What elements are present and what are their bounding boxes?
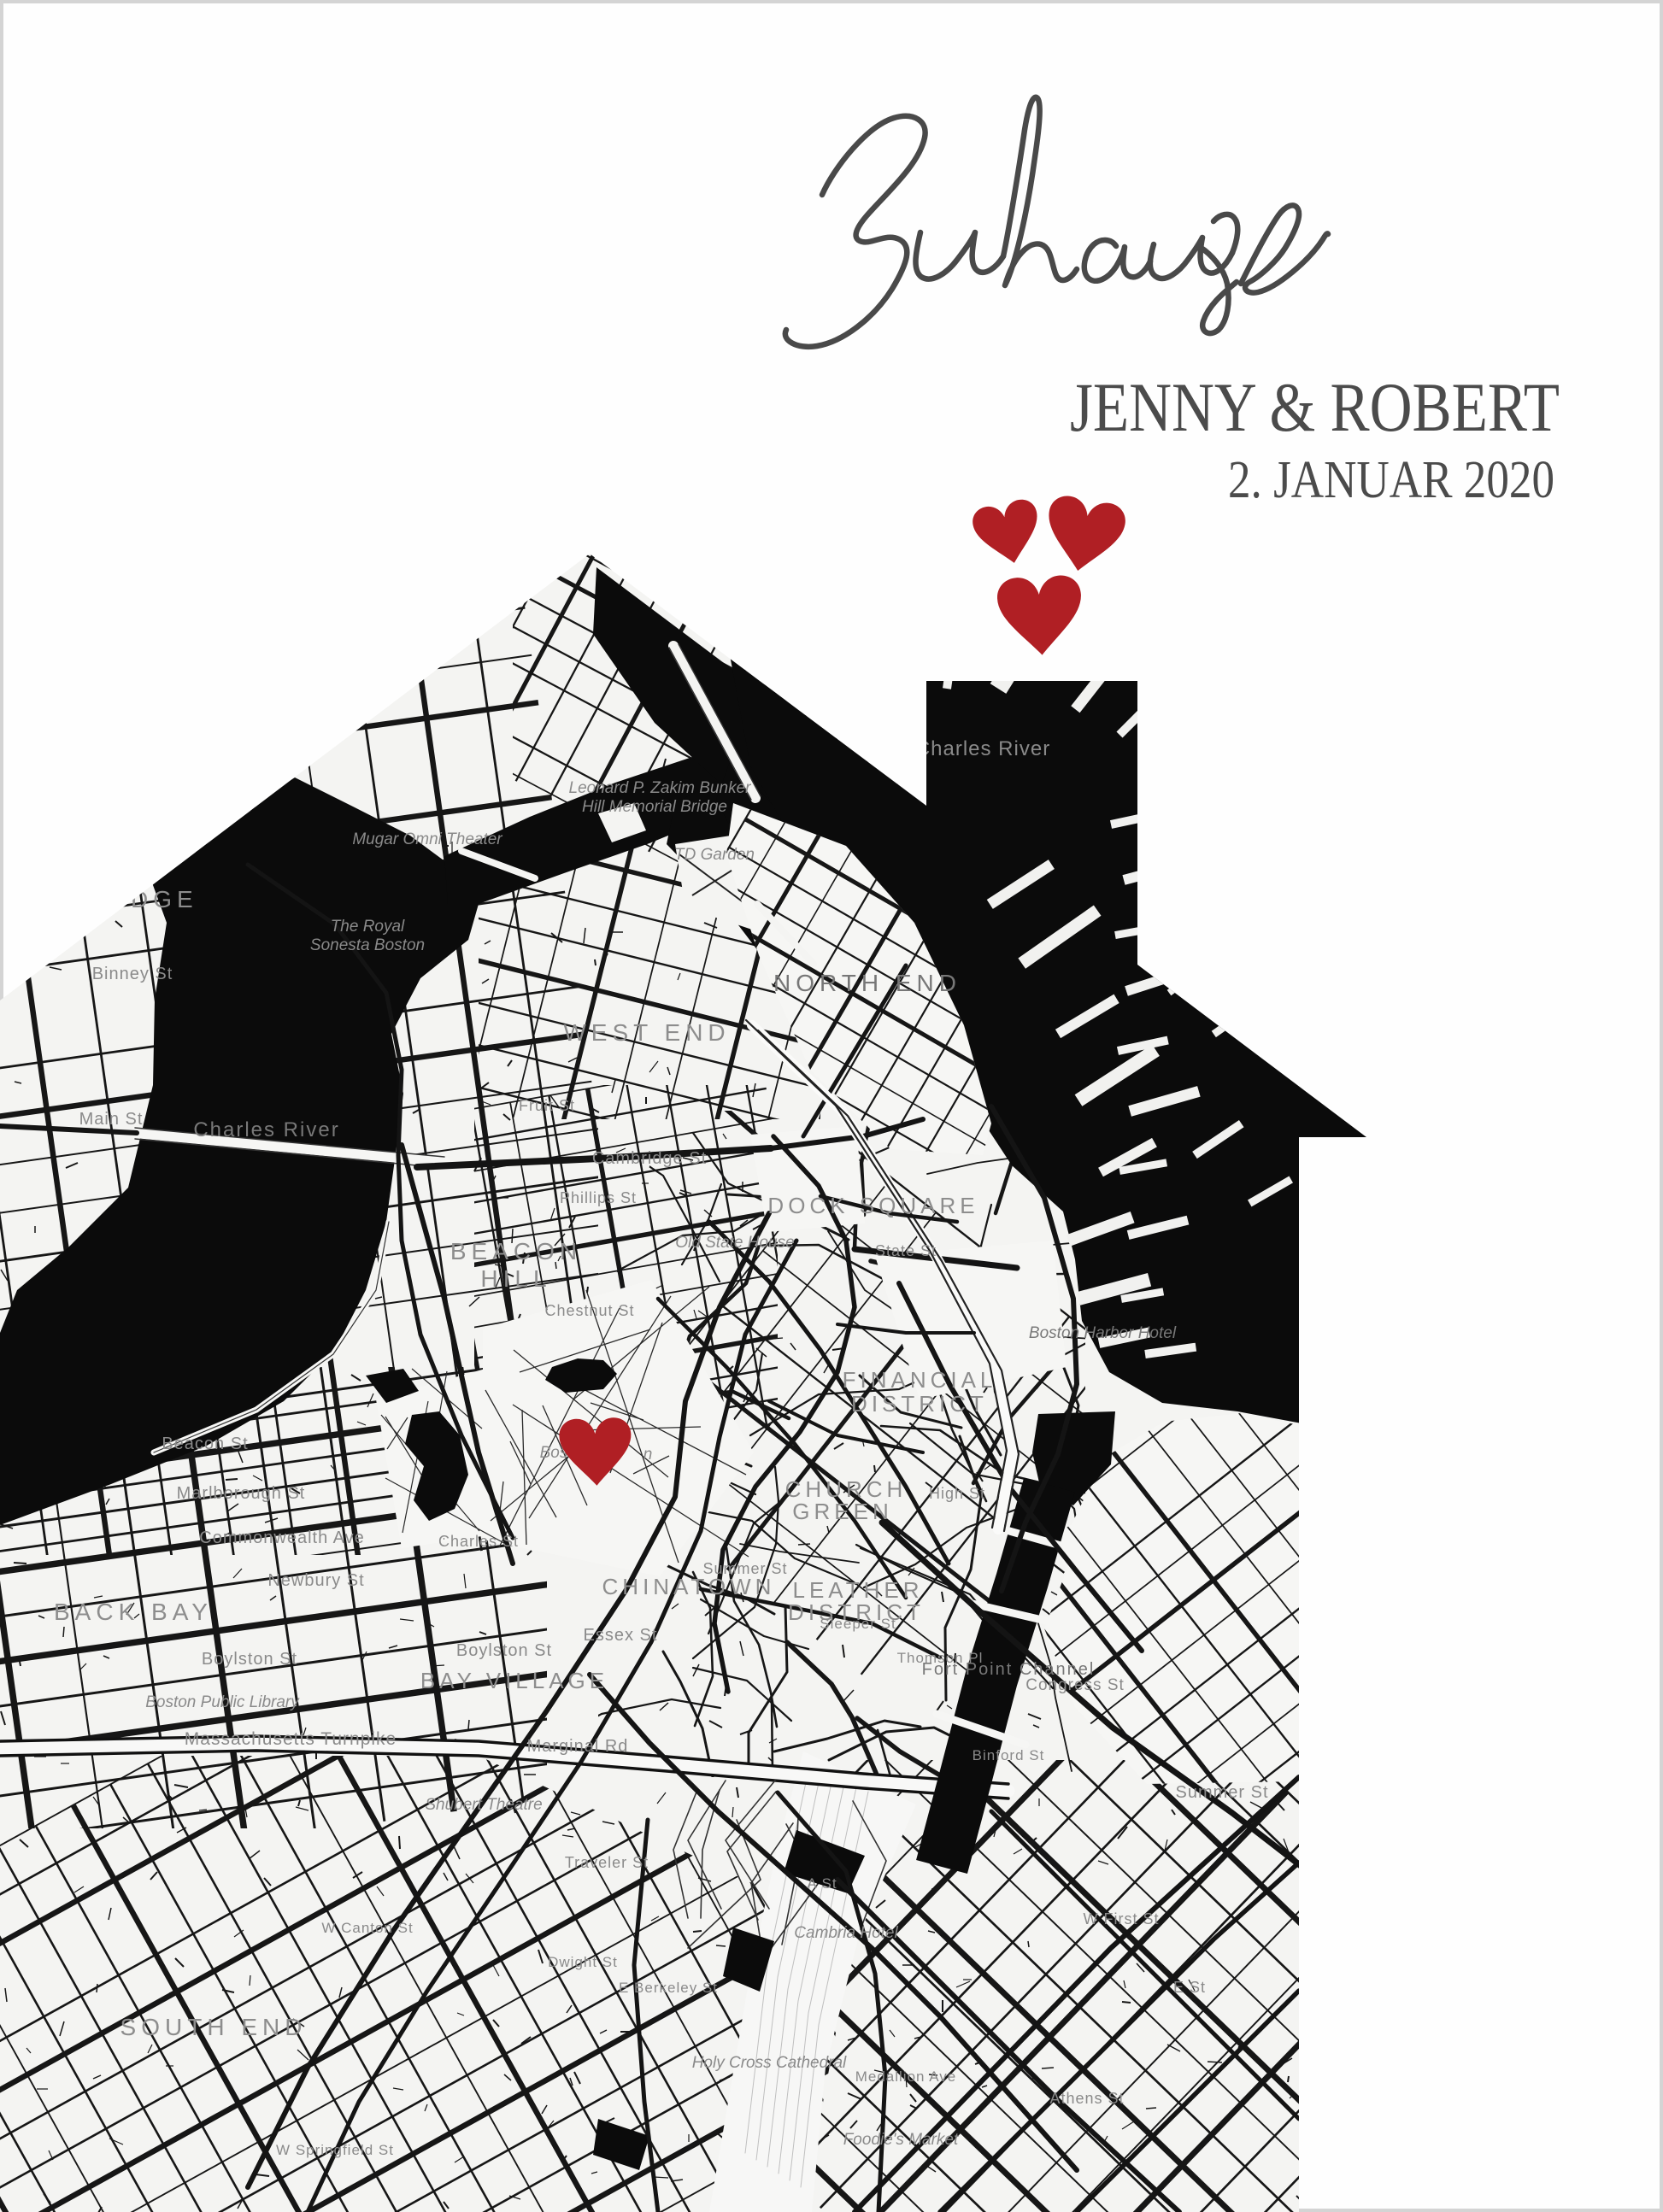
svg-text:High St: High St <box>929 1485 985 1502</box>
svg-text:Thomson Pl: Thomson Pl <box>897 1650 984 1666</box>
svg-text:Newbury St: Newbury St <box>267 1571 364 1590</box>
svg-text:Boylston St: Boylston St <box>202 1650 297 1669</box>
svg-text:Marlborough St: Marlborough St <box>177 1484 306 1503</box>
svg-text:Sonesta Boston: Sonesta Boston <box>310 936 425 954</box>
svg-text:BEACON: BEACON <box>450 1238 582 1264</box>
svg-text:Marginal Rd: Marginal Rd <box>527 1737 629 1756</box>
svg-text:State St: State St <box>875 1242 937 1259</box>
svg-text:Chestnut St: Chestnut St <box>544 1302 634 1319</box>
svg-text:Binney St: Binney St <box>92 965 173 983</box>
svg-text:JENNY & ROBERT: JENNY & ROBERT <box>1070 368 1560 446</box>
svg-text:Binford St: Binford St <box>973 1747 1045 1763</box>
svg-text:E St: E St <box>1173 1979 1206 1996</box>
svg-text:Phillips St: Phillips St <box>560 1189 637 1206</box>
svg-text:Traveler St: Traveler St <box>565 1854 649 1871</box>
svg-text:Sleeper St: Sleeper St <box>820 1616 896 1632</box>
svg-text:A St: A St <box>807 1875 837 1892</box>
svg-text:Summer St: Summer St <box>702 1560 787 1577</box>
svg-text:DISTRICT: DISTRICT <box>851 1391 988 1417</box>
svg-text:Foodie's Market: Foodie's Market <box>843 2131 959 2149</box>
svg-text:Boston Public Library: Boston Public Library <box>145 1693 300 1711</box>
svg-text:Medallion Ave: Medallion Ave <box>855 2068 957 2085</box>
svg-text:Fruit St: Fruit St <box>519 1097 575 1114</box>
svg-text:BAY VILLAGE: BAY VILLAGE <box>420 1668 608 1693</box>
svg-text:CHINATOWN: CHINATOWN <box>602 1574 776 1599</box>
svg-text:HILL: HILL <box>480 1265 551 1292</box>
svg-text:Congress St: Congress St <box>1025 1676 1125 1694</box>
svg-text:Old State House: Old State House <box>675 1234 794 1252</box>
svg-text:SOUTH END: SOUTH END <box>120 2014 308 2040</box>
svg-text:W First St: W First St <box>1084 1910 1160 1927</box>
svg-text:Essex St: Essex St <box>584 1626 658 1645</box>
svg-text:Cambria Hotel: Cambria Hotel <box>794 1924 898 1942</box>
svg-text:Holy Cross Cathedral: Holy Cross Cathedral <box>692 2054 847 2072</box>
svg-text:Massachusetts Turnpike: Massachusetts Turnpike <box>185 1729 397 1749</box>
svg-text:Charles St: Charles St <box>438 1533 519 1550</box>
svg-text:FINANCIAL: FINANCIAL <box>843 1367 997 1393</box>
svg-text:n: n <box>643 1446 653 1464</box>
svg-text:Mugar Omni Theater: Mugar Omni Theater <box>352 830 502 848</box>
svg-text:BACK BAY: BACK BAY <box>54 1599 213 1625</box>
svg-text:Dwight St: Dwight St <box>548 1954 618 1970</box>
svg-text:TD Garden: TD Garden <box>674 846 755 864</box>
svg-text:Boston Harbor Hotel: Boston Harbor Hotel <box>1029 1324 1177 1342</box>
svg-text:Charles River: Charles River <box>915 737 1050 760</box>
svg-text:Shubert Theatre: Shubert Theatre <box>425 1796 542 1814</box>
svg-text:Charles River: Charles River <box>193 1118 339 1141</box>
svg-text:Leonard P. Zakim Bunker: Leonard P. Zakim Bunker <box>569 779 752 797</box>
svg-text:Cambridge St: Cambridge St <box>592 1149 707 1168</box>
svg-text:GREEN: GREEN <box>792 1499 892 1524</box>
svg-text:The Royal: The Royal <box>331 918 405 936</box>
svg-text:Summer St: Summer St <box>1175 1783 1268 1802</box>
svg-text:WEST END: WEST END <box>563 1019 730 1046</box>
svg-text:Hill Memorial Bridge: Hill Memorial Bridge <box>582 798 727 816</box>
svg-text:W Canton St: W Canton St <box>321 1920 413 1936</box>
svg-text:Commonwealth Ave: Commonwealth Ave <box>199 1528 365 1547</box>
svg-text:Beacon St: Beacon St <box>162 1435 248 1453</box>
svg-text:E Berkeley St: E Berkeley St <box>619 1980 718 1996</box>
svg-text:W Springfield St: W Springfield St <box>276 2142 394 2158</box>
svg-text:2. JANUAR 2020: 2. JANUAR 2020 <box>1228 451 1554 509</box>
svg-text:Athens St: Athens St <box>1049 2090 1124 2107</box>
svg-text:NORTH END: NORTH END <box>773 970 961 996</box>
svg-text:Main St: Main St <box>79 1110 144 1129</box>
svg-text:DOCK SQUARE: DOCK SQUARE <box>767 1193 978 1218</box>
svg-text:Boylston St: Boylston St <box>456 1641 552 1660</box>
